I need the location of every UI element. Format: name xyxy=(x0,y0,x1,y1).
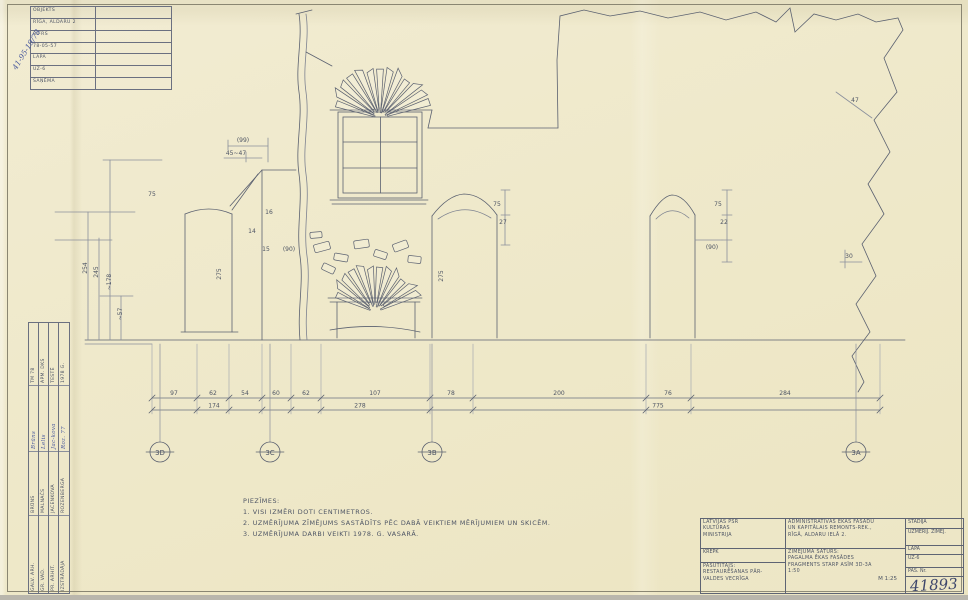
rubble-stone xyxy=(313,241,331,253)
dimension-annotation: 75 xyxy=(493,201,501,208)
dimension-annotation: 16 xyxy=(265,209,273,216)
rubble-stone xyxy=(373,249,388,260)
stamp-row: ŠIFRS xyxy=(31,31,171,43)
dimension-annotation: 275 xyxy=(216,268,223,280)
signature: Roz. 77 xyxy=(59,385,69,451)
chain-dimension-value: 78 xyxy=(447,390,455,397)
chain-dimension-value: 62 xyxy=(209,390,217,397)
client-line: VALDES VECRĪGA xyxy=(703,577,783,583)
right-arched-opening xyxy=(650,190,732,338)
rubble-stone xyxy=(333,253,348,262)
sheet-value: UZ-6 xyxy=(906,555,963,568)
chain-dimension-value: 284 xyxy=(779,390,791,397)
stamp-row: 78-05-57 xyxy=(31,43,171,55)
chain-dimension-value: 54 xyxy=(241,390,249,397)
total-dimension-value: 174 xyxy=(208,403,220,410)
signer-role: GALV. ARH. xyxy=(29,515,38,593)
stage-label: STADIJA xyxy=(906,519,963,529)
dimension-annotation: 14 xyxy=(248,228,256,235)
signature: Lelis xyxy=(39,385,48,451)
signature-row: PR. ARHIT.JACENKOVAJac-kovaTESTĒ xyxy=(49,323,59,593)
stamp-row: UZ-6 xyxy=(31,66,171,78)
signer-name: ROZENBERGA xyxy=(59,451,69,515)
misc-dimension-lines xyxy=(55,92,872,340)
dimension-annotation: ~57 xyxy=(117,307,124,320)
scanned-drawing-sheet: 97625460621077820076284174278775 3D3C3B3… xyxy=(0,0,968,600)
stamp-row: LAPA xyxy=(31,54,171,66)
stamp-row: SAŅĒMA xyxy=(31,78,171,89)
total-dimension-value: 775 xyxy=(652,403,664,410)
corner-stamp-table: OBJEKTSRĪGA, ALDARU 2ŠIFRS78-05-57LAPAUZ… xyxy=(30,6,172,90)
stamp-row-label: UZ-6 xyxy=(31,66,96,77)
drawing-content: PAGALMA ĒKAS FASĀDESFRAGMENTS STARP ASĪM… xyxy=(788,556,903,575)
dimension-annotation: (99) xyxy=(237,137,249,144)
dimension-annotation: ~178 xyxy=(106,274,113,291)
note-item: 3. UZMĒRĪJUMA DARBI VEIKTI 1978. G. VASA… xyxy=(243,530,713,540)
notes-title: PIEZĪMES: xyxy=(243,497,713,507)
rubble-stone xyxy=(392,240,409,253)
stamp-row-value xyxy=(96,43,171,54)
signer-role: GR. VAD. xyxy=(39,515,48,593)
stamp-row-value xyxy=(96,19,171,30)
axis-label: 3D xyxy=(155,449,165,457)
dimension-annotation: 275 xyxy=(438,270,445,282)
signature-row: IZSTRĀDĀJAROZENBERGARoz. 771978 G. xyxy=(59,323,69,593)
center-window xyxy=(330,110,432,204)
dimension-annotation: (90) xyxy=(706,244,718,251)
stamp-row-value xyxy=(96,78,171,89)
stage-value: UZMĒRĪJ. ZĪMĒJ. xyxy=(906,529,963,546)
rubble-stone xyxy=(354,239,370,249)
signature-row: GALV. ARH.BRŪNSBrūnsTM 78 xyxy=(29,323,39,593)
dimension-annotation: 75 xyxy=(714,201,722,208)
signer-role: PR. ARHIT. xyxy=(49,515,58,593)
signature-table: GALV. ARH.BRŪNSBrūnsTM 78GR. VAD.MALNAČS… xyxy=(28,322,70,594)
axis-label: 3A xyxy=(851,449,860,457)
signature-date: TM 78 xyxy=(29,323,38,385)
signature-row: GR. VAD.MALNAČSLelisAPM. DKS xyxy=(39,323,49,593)
sheet-label: LAPA xyxy=(906,546,963,555)
signer-name: JACENKOVA xyxy=(49,451,58,515)
stamp-row-value xyxy=(96,54,171,65)
stamp-row-label: LAPA xyxy=(31,54,96,65)
chain-dimension-value: 97 xyxy=(170,390,178,397)
department: KREPK xyxy=(701,549,785,563)
title-block-left-column: LATVIJAS PSRKULTŪRASMINISTRIJA KREPK PAS… xyxy=(701,519,786,593)
organization-name: LATVIJAS PSRKULTŪRASMINISTRIJA xyxy=(701,519,785,549)
left-door-opening xyxy=(181,170,296,340)
stamp-row-value xyxy=(96,31,171,42)
axis-label: 3B xyxy=(427,449,436,457)
signature: Brūns xyxy=(29,385,38,451)
stamp-row-label: 78-05-57 xyxy=(31,43,96,54)
rubble-stone xyxy=(408,255,422,263)
grid-axes: 3D3C3B3A xyxy=(146,344,870,462)
chain-dimension-value: 60 xyxy=(272,390,280,397)
dimension-annotation: 22 xyxy=(720,219,728,226)
signature-date: 1978 G. xyxy=(59,323,69,385)
stamp-row-value xyxy=(96,7,171,18)
dimension-annotation: 254 xyxy=(82,262,89,274)
dimension-annotation: (90) xyxy=(283,246,295,253)
organization-line: MINISTRIJA xyxy=(703,533,783,539)
handwritten-doc-number: 41893 xyxy=(906,576,964,595)
project-line: RĪGĀ, ALDARU IELĀ 2. xyxy=(788,533,903,539)
signer-name: BRŪNS xyxy=(29,451,38,515)
stamp-row-value xyxy=(96,66,171,77)
rubble-stone xyxy=(321,263,336,275)
scale-value: M 1:25 xyxy=(788,576,903,582)
chain-dimension-value: 200 xyxy=(553,390,565,397)
signature-date: TESTĒ xyxy=(49,323,58,385)
stamp-row-label: SAŅĒMA xyxy=(31,78,96,89)
signature: Jac-kova xyxy=(49,385,58,451)
total-dimension-value: 278 xyxy=(354,403,366,410)
dimension-annotation: 27 xyxy=(499,219,507,226)
dimension-annotation: 15 xyxy=(262,246,270,253)
dimension-chain: 97625460621077820076284174278775 xyxy=(149,344,883,414)
notes-block: PIEZĪMES: 1. VISI IZMĒRI DOTI CENTIMETRO… xyxy=(243,497,713,541)
title-block-middle-column: ADMINISTRATĪVĀS ĒKAS FASĀDUUN KAPITĀLAIS… xyxy=(786,519,906,593)
axis-label: 3C xyxy=(265,449,274,457)
dimension-annotation: 45~47 xyxy=(226,150,246,157)
chain-dimension-value: 62 xyxy=(302,390,310,397)
dimension-annotations: (99)45~4775254245~178~57275275161415(90)… xyxy=(82,97,859,320)
stamp-row: RĪGA, ALDARU 2 xyxy=(31,19,171,31)
voussoir-stones xyxy=(310,68,431,311)
dimension-annotation: 47 xyxy=(851,97,859,104)
dimension-annotation: 75 xyxy=(148,191,156,198)
chain-dimension-value: 76 xyxy=(664,390,672,397)
title-block-right-column: STADIJA UZMĒRĪJ. ZĪMĒJ. LAPA UZ-6 PAS. N… xyxy=(906,519,963,593)
wall-outlines xyxy=(85,8,905,392)
dimension-annotation: 245 xyxy=(93,266,100,278)
note-item: 2. UZMĒRĪJUMA ZĪMĒJUMS SASTĀDĪTS PĒC DAB… xyxy=(243,519,713,529)
project-title: ADMINISTRATĪVĀS ĒKAS FASĀDUUN KAPITĀLAIS… xyxy=(786,519,905,549)
client-name: PASŪTĪTĀJS:RESTAURĒŠANAS PĀR-VALDES VECR… xyxy=(701,563,785,593)
middle-arched-opening xyxy=(432,190,510,338)
note-item: 1. VISI IZMĒRI DOTI CENTIMETROS. xyxy=(243,508,713,518)
dimension-annotation: 30 xyxy=(845,253,853,260)
signer-name: MALNAČS xyxy=(39,451,48,515)
signer-role: IZSTRĀDĀJA xyxy=(59,515,69,593)
chain-dimension-value: 107 xyxy=(369,390,381,397)
signature-date: APM. DKS xyxy=(39,323,48,385)
rubble-stone xyxy=(310,231,322,238)
title-block: LATVIJAS PSRKULTŪRASMINISTRIJA KREPK PAS… xyxy=(700,518,964,594)
